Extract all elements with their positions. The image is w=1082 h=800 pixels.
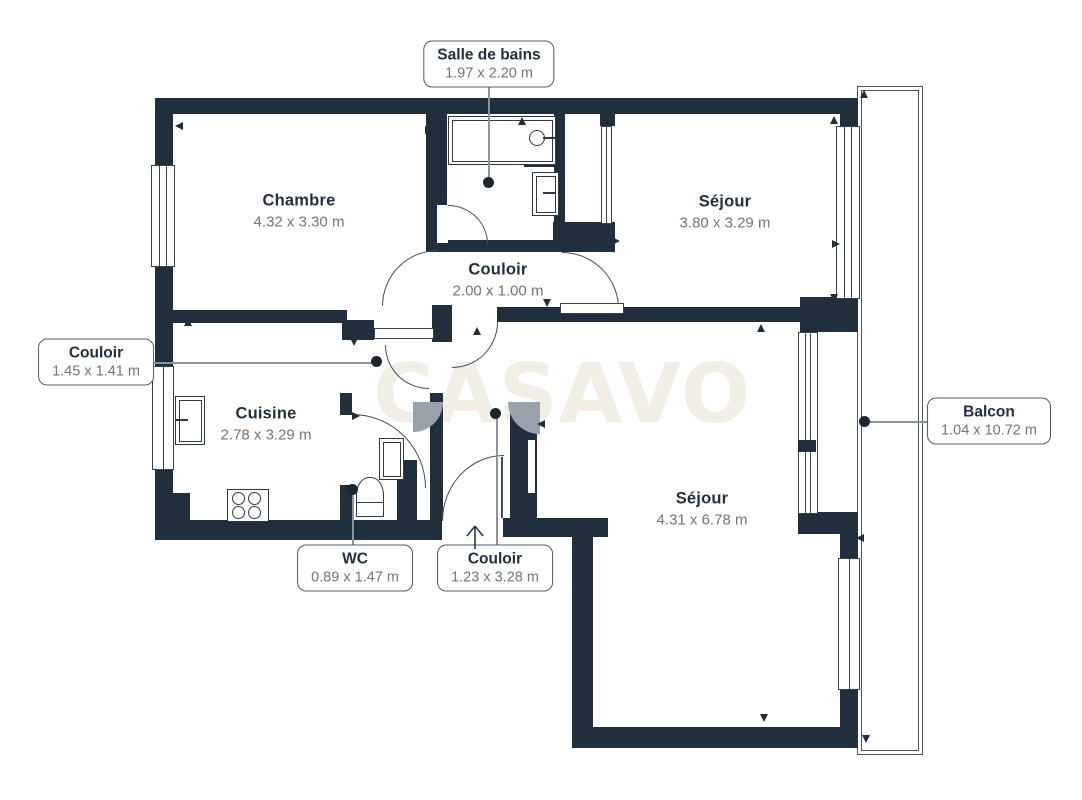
wall [553,222,615,252]
door-arc [382,250,438,306]
tick-mark [350,338,358,346]
room-label-cuisine: Cuisine 2.78 x 3.29 m [221,405,312,444]
wall [497,307,800,322]
door-arc [562,252,619,309]
window [152,366,174,470]
tick-mark [537,420,545,428]
room-label-sejour-haut: Séjour 3.80 x 3.29 m [680,193,771,232]
tick-mark [830,294,838,302]
tick-mark [760,714,768,722]
sliding-door [374,328,434,339]
callout-couloir-entree: Couloir 1.23 x 3.28 m [437,545,553,592]
kitchen-sink [175,396,205,445]
callout-dims: 1.04 x 10.72 m [941,423,1037,439]
floor-plan: CASAVO [0,0,1082,800]
balcony-door-window [798,332,818,514]
toilet-tank [356,502,384,517]
window [838,558,860,690]
tick-mark [428,117,436,125]
wall [572,535,593,747]
callout-balcon: Balcon 1.04 x 10.72 m [927,398,1051,445]
callout-salle-de-bains: Salle de bains 1.97 x 2.20 m [423,41,554,88]
sink-tap [543,192,555,194]
wall [173,310,347,323]
callout-name: Couloir [52,345,140,363]
tick-mark [518,117,526,125]
room-dims: 2.00 x 1.00 m [453,283,544,300]
callout-dims: 1.23 x 3.28 m [451,570,539,586]
tick-mark [473,327,481,335]
stove-burner-icon [232,506,245,519]
leader-line [148,362,378,364]
tick-mark [612,237,620,245]
wall [432,305,452,342]
leader-line [868,421,932,423]
door-leaf [501,457,503,518]
tick-mark [832,240,840,248]
wall [426,205,437,252]
room-name: Chambre [254,192,345,211]
callout-wc: WC 0.89 x 1.47 m [297,545,413,592]
tick-mark [352,412,360,420]
tick-mark [175,122,183,130]
wall [572,727,858,748]
callout-name: Balcon [941,404,1037,422]
shower-arm [543,137,555,139]
room-dims: 4.31 x 6.78 m [657,512,748,529]
callout-name: Salle de bains [437,47,540,65]
room-label-chambre: Chambre 4.32 x 3.30 m [254,192,345,231]
leader-dot [347,484,358,495]
wall [600,112,615,126]
wall [340,393,352,415]
wall [173,493,190,523]
window [836,126,860,299]
sliding-door [560,303,624,314]
leader-dot [490,408,501,419]
room-label-couloir-central: Couloir 2.00 x 1.00 m [453,261,544,300]
wall-niche [528,440,535,493]
wall [437,243,448,252]
wall [342,320,374,340]
leader-line [496,414,498,546]
wall [798,512,858,534]
tick-mark [757,324,765,332]
tick-mark [862,735,870,743]
entry-door-arc [442,455,504,521]
tick-mark [856,534,864,542]
callout-name: WC [311,551,399,569]
wall [800,297,858,332]
stove-burner-icon [248,492,261,505]
leader-line [488,86,490,183]
door-arc [448,205,488,244]
leader-dot [859,416,870,427]
leader-line [352,489,354,546]
window [151,165,175,267]
leader-dot [483,177,494,188]
room-dims: 3.80 x 3.29 m [680,215,771,232]
wall [798,440,816,452]
entry-arrow-icon [462,522,488,555]
stove-burner-icon [248,506,261,519]
sink-tap [175,419,188,421]
stove-burner-icon [232,492,245,505]
wall [840,687,858,748]
wall [155,263,173,366]
tick-mark [425,126,433,134]
tick-mark [543,299,551,307]
wall [155,468,173,522]
room-label-sejour-bas: Séjour 4.31 x 6.78 m [657,490,748,529]
callout-dims: 1.97 x 2.20 m [437,66,540,82]
callout-dims: 0.89 x 1.47 m [311,570,399,586]
callout-dims: 1.45 x 1.41 m [52,364,140,380]
room-name: Cuisine [221,405,312,424]
room-name: Couloir [453,261,544,280]
room-dims: 2.78 x 3.29 m [221,427,312,444]
leader-dot [371,356,382,367]
tick-mark [184,318,192,326]
wall [840,98,858,126]
wall [155,98,857,114]
room-name: Séjour [657,490,748,509]
bathroom-sink [532,172,559,216]
tick-mark [830,116,838,124]
glazed-partition [601,126,612,224]
room-name: Séjour [680,193,771,212]
room-dims: 4.32 x 3.30 m [254,214,345,231]
callout-couloir-ouest: Couloir 1.45 x 1.41 m [38,339,154,386]
tick-mark [860,90,868,98]
washbasin [379,438,404,480]
wall [155,98,173,168]
